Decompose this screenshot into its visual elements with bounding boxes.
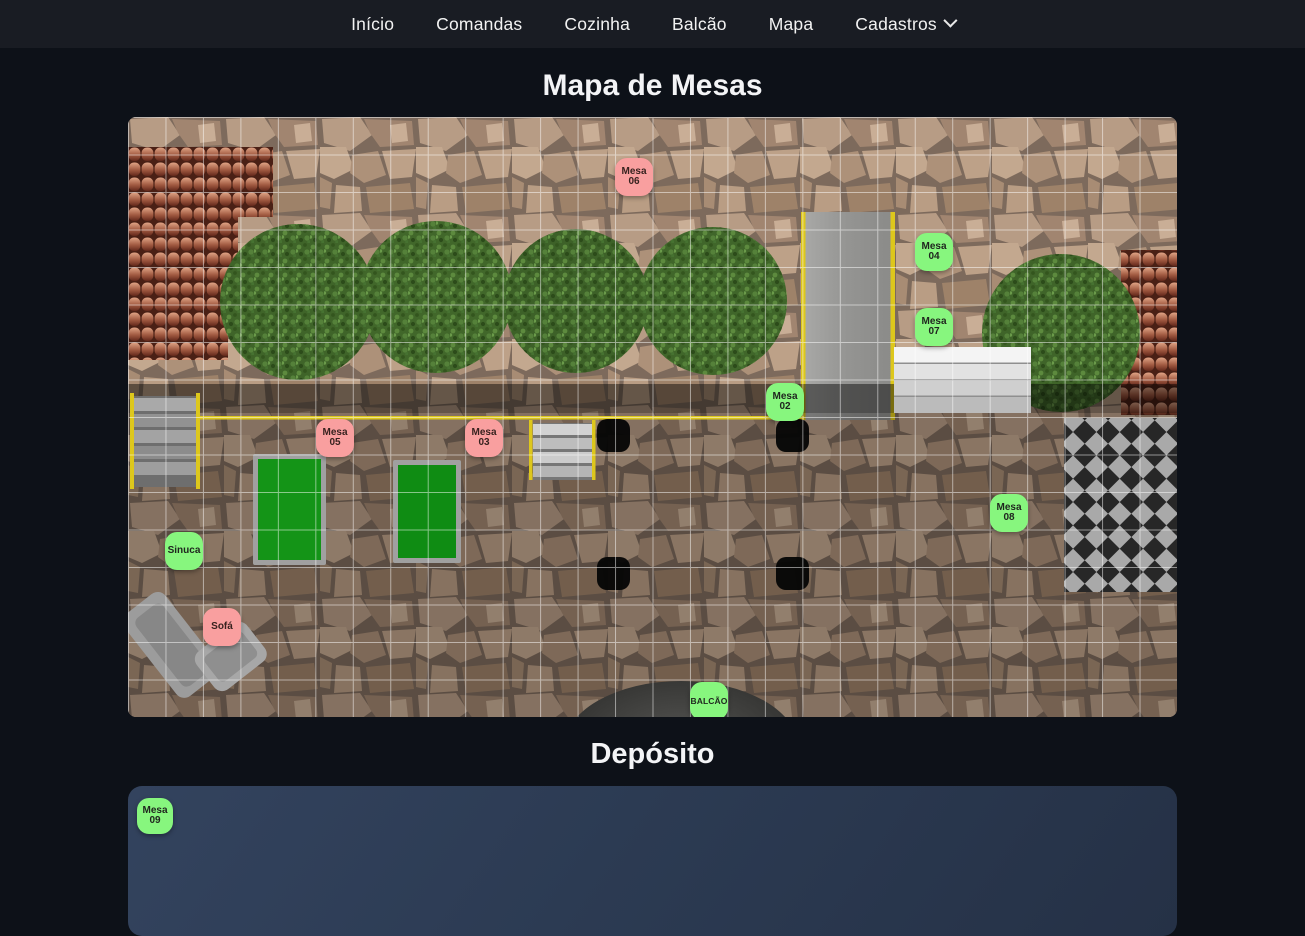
nav-item-inicio[interactable]: Início	[351, 14, 394, 35]
nav-item-label: Comandas	[436, 14, 522, 35]
table-badge-mesa-02[interactable]: Mesa 02	[766, 383, 804, 421]
table-badge-mesa-08[interactable]: Mesa 08	[990, 494, 1028, 532]
deposito-title: Depósito	[0, 738, 1305, 771]
map-background-art	[128, 117, 1177, 717]
nav-item-cozinha[interactable]: Cozinha	[564, 14, 630, 35]
chevron-down-icon	[943, 14, 957, 28]
nav-item-cadastros[interactable]: Cadastros	[855, 14, 954, 35]
nav-item-label: Início	[351, 14, 394, 35]
nav-item-label: Balcão	[672, 14, 727, 35]
table-badge-mesa-05[interactable]: Mesa 05	[316, 419, 354, 457]
table-map-canvas: Mesa 06Mesa 04Mesa 07Mesa 02Mesa 05Mesa …	[128, 117, 1177, 717]
nav-item-label: Cadastros	[855, 14, 937, 35]
nav-item-comandas[interactable]: Comandas	[436, 14, 522, 35]
table-badge-mesa-04[interactable]: Mesa 04	[915, 233, 953, 271]
page-title: Mapa de Mesas	[0, 69, 1305, 103]
table-badge-mesa-06[interactable]: Mesa 06	[615, 158, 653, 196]
top-navbar: InícioComandasCozinhaBalcãoMapaCadastros	[0, 0, 1305, 48]
deposito-panel: Mesa 09	[128, 786, 1177, 936]
table-badge-balcao[interactable]: BALCÃO	[690, 682, 728, 717]
table-badge-mesa-07[interactable]: Mesa 07	[915, 308, 953, 346]
nav-item-label: Cozinha	[564, 14, 630, 35]
nav-item-mapa[interactable]: Mapa	[769, 14, 814, 35]
nav-item-label: Mapa	[769, 14, 814, 35]
table-badge-mesa-03[interactable]: Mesa 03	[465, 419, 503, 457]
table-badge-sofa[interactable]: Sofá	[203, 608, 241, 646]
table-badge-mesa-09[interactable]: Mesa 09	[137, 798, 173, 834]
table-badge-sinuca[interactable]: Sinuca	[165, 532, 203, 570]
nav-item-balcao[interactable]: Balcão	[672, 14, 727, 35]
